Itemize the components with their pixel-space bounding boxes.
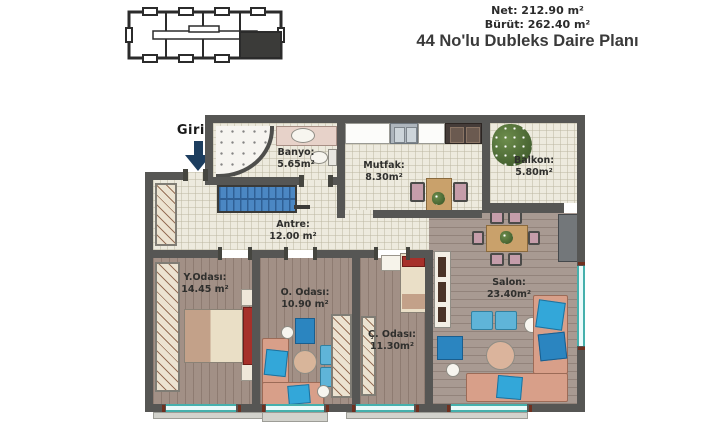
double-bed — [184, 309, 243, 363]
wall — [145, 172, 188, 180]
sofa-cushion — [535, 299, 566, 330]
sink-basin — [394, 127, 405, 143]
room-name: Y.Odası: — [160, 272, 250, 284]
kitchen-chair — [410, 182, 425, 202]
floor-plan-page: Net: 212.90 m² Bürüt: 262.40 m² 44 No'lu… — [0, 0, 720, 432]
burner — [466, 127, 480, 143]
kitchen-chair — [453, 182, 468, 202]
wall-tick — [578, 347, 585, 350]
room-area: 8.30m² — [339, 172, 429, 184]
window — [266, 404, 324, 412]
room-name: Mutfak: — [339, 160, 429, 172]
wall-tick — [529, 405, 532, 412]
highlighted-unit — [240, 32, 281, 58]
door-post — [299, 175, 304, 187]
dining-chair — [508, 253, 522, 266]
coffee-table — [486, 341, 515, 370]
pouf — [471, 311, 493, 330]
area-summary: Net: 212.90 m² Bürüt: 262.40 m² — [430, 4, 645, 32]
wall — [425, 250, 433, 404]
side-table — [281, 326, 294, 339]
entrance-arrow-icon — [194, 141, 203, 155]
kitchen-cabinet — [418, 123, 445, 144]
wall — [482, 203, 564, 213]
dining-chair — [490, 253, 504, 266]
wall — [315, 250, 378, 258]
room-area: 5.80m² — [489, 167, 579, 179]
window — [451, 404, 527, 412]
wall — [373, 210, 482, 218]
room-name: Antre: — [248, 219, 338, 231]
room-label-antre: Antre: 12.00 m² — [248, 219, 338, 242]
room-area: 10.90 m² — [260, 299, 350, 311]
net-area-text: Net: 212.90 m² — [430, 4, 645, 18]
wall-tick — [326, 405, 329, 412]
window — [577, 266, 585, 346]
small-cabinet — [381, 255, 401, 271]
stair-railing — [294, 205, 310, 209]
wall — [153, 250, 222, 258]
wall — [205, 115, 585, 123]
entry-closet — [155, 183, 177, 246]
bed-blanket — [402, 294, 425, 309]
round-table — [293, 350, 317, 374]
burner — [450, 127, 464, 143]
plan-title: 44 No'lu Dubleks Daire Planı — [405, 32, 650, 51]
room-label-c-odasi: Ç. Odası: 11.30m² — [347, 329, 437, 352]
wall-tick — [262, 405, 265, 412]
sofa-cushion — [496, 375, 523, 400]
room-area: 14.45 m² — [160, 284, 250, 296]
brut-area-text: Bürüt: 262.40 m² — [430, 18, 645, 32]
table-plant — [432, 192, 445, 205]
room-label-mutfak: Mutfak: 8.30m² — [339, 160, 429, 183]
room-name: Salon: — [464, 277, 554, 289]
armchair — [295, 318, 315, 344]
wall-tick — [447, 405, 450, 412]
dining-chair — [528, 231, 540, 245]
room-name: Balkon: — [489, 155, 579, 167]
room-label-salon: Salon: 23.40m² — [464, 277, 554, 300]
wall-tick — [162, 405, 165, 412]
kitchen-sink-unit — [390, 123, 418, 144]
duplex-stairs — [217, 185, 297, 213]
wall-tick — [416, 405, 419, 412]
room-area: 11.30m² — [347, 341, 437, 353]
tv-unit — [434, 251, 451, 328]
room-name: Ç. Odası: — [347, 329, 437, 341]
room-name: O. Odası: — [260, 287, 350, 299]
side-table — [317, 385, 330, 398]
room-area: 12.00 m² — [248, 231, 338, 243]
sofa-cushion — [287, 384, 311, 405]
bathroom-sink — [291, 128, 315, 143]
door-post — [284, 247, 288, 260]
window — [356, 404, 414, 412]
wall — [205, 177, 302, 185]
door-post — [406, 247, 410, 260]
stove-unit — [445, 123, 482, 144]
sink-drainer — [406, 127, 417, 143]
door-post — [218, 247, 222, 260]
gray-cabinet — [558, 214, 578, 262]
room-label-balkon: Balkon: 5.80m² — [489, 155, 579, 178]
tv-unit-shelf — [438, 307, 446, 322]
door-post — [374, 247, 378, 260]
dining-chair — [472, 231, 484, 245]
room-name: Banyo: — [251, 147, 341, 159]
tv-unit-shelf — [438, 282, 446, 302]
bedroom-wardrobe — [331, 314, 352, 398]
side-table — [446, 363, 460, 377]
room-label-banyo: Banyo: 5.65m² — [251, 147, 341, 170]
room-area: 5.65m² — [251, 159, 341, 171]
door-post — [313, 247, 317, 260]
wall — [145, 172, 153, 412]
bedroom-wardrobe — [361, 316, 376, 396]
wall — [352, 250, 360, 404]
door-post — [183, 169, 188, 181]
room-label-y-odasi: Y.Odası: 14.45 m² — [160, 272, 250, 295]
tv-unit-shelf — [438, 257, 446, 277]
window-sill — [153, 412, 271, 419]
sofa-cushion — [264, 349, 289, 377]
window-sill — [262, 412, 328, 422]
window-sill — [346, 412, 528, 419]
pouf — [495, 311, 517, 330]
room-label-o-odasi: O. Odası: 10.90 m² — [260, 287, 350, 310]
door-post — [248, 247, 252, 260]
table-plant — [500, 231, 513, 244]
sofa-cushion — [538, 332, 568, 362]
armchair — [437, 336, 463, 360]
wall — [252, 250, 260, 404]
wall-tick — [238, 405, 241, 412]
wall-tick — [578, 262, 585, 265]
door-post — [203, 169, 208, 181]
window — [166, 404, 236, 412]
door-post — [328, 175, 333, 187]
wall-tick — [352, 405, 355, 412]
building-key-plan — [123, 4, 287, 66]
room-area: 23.40m² — [464, 289, 554, 301]
kitchen-cabinet — [345, 123, 390, 144]
